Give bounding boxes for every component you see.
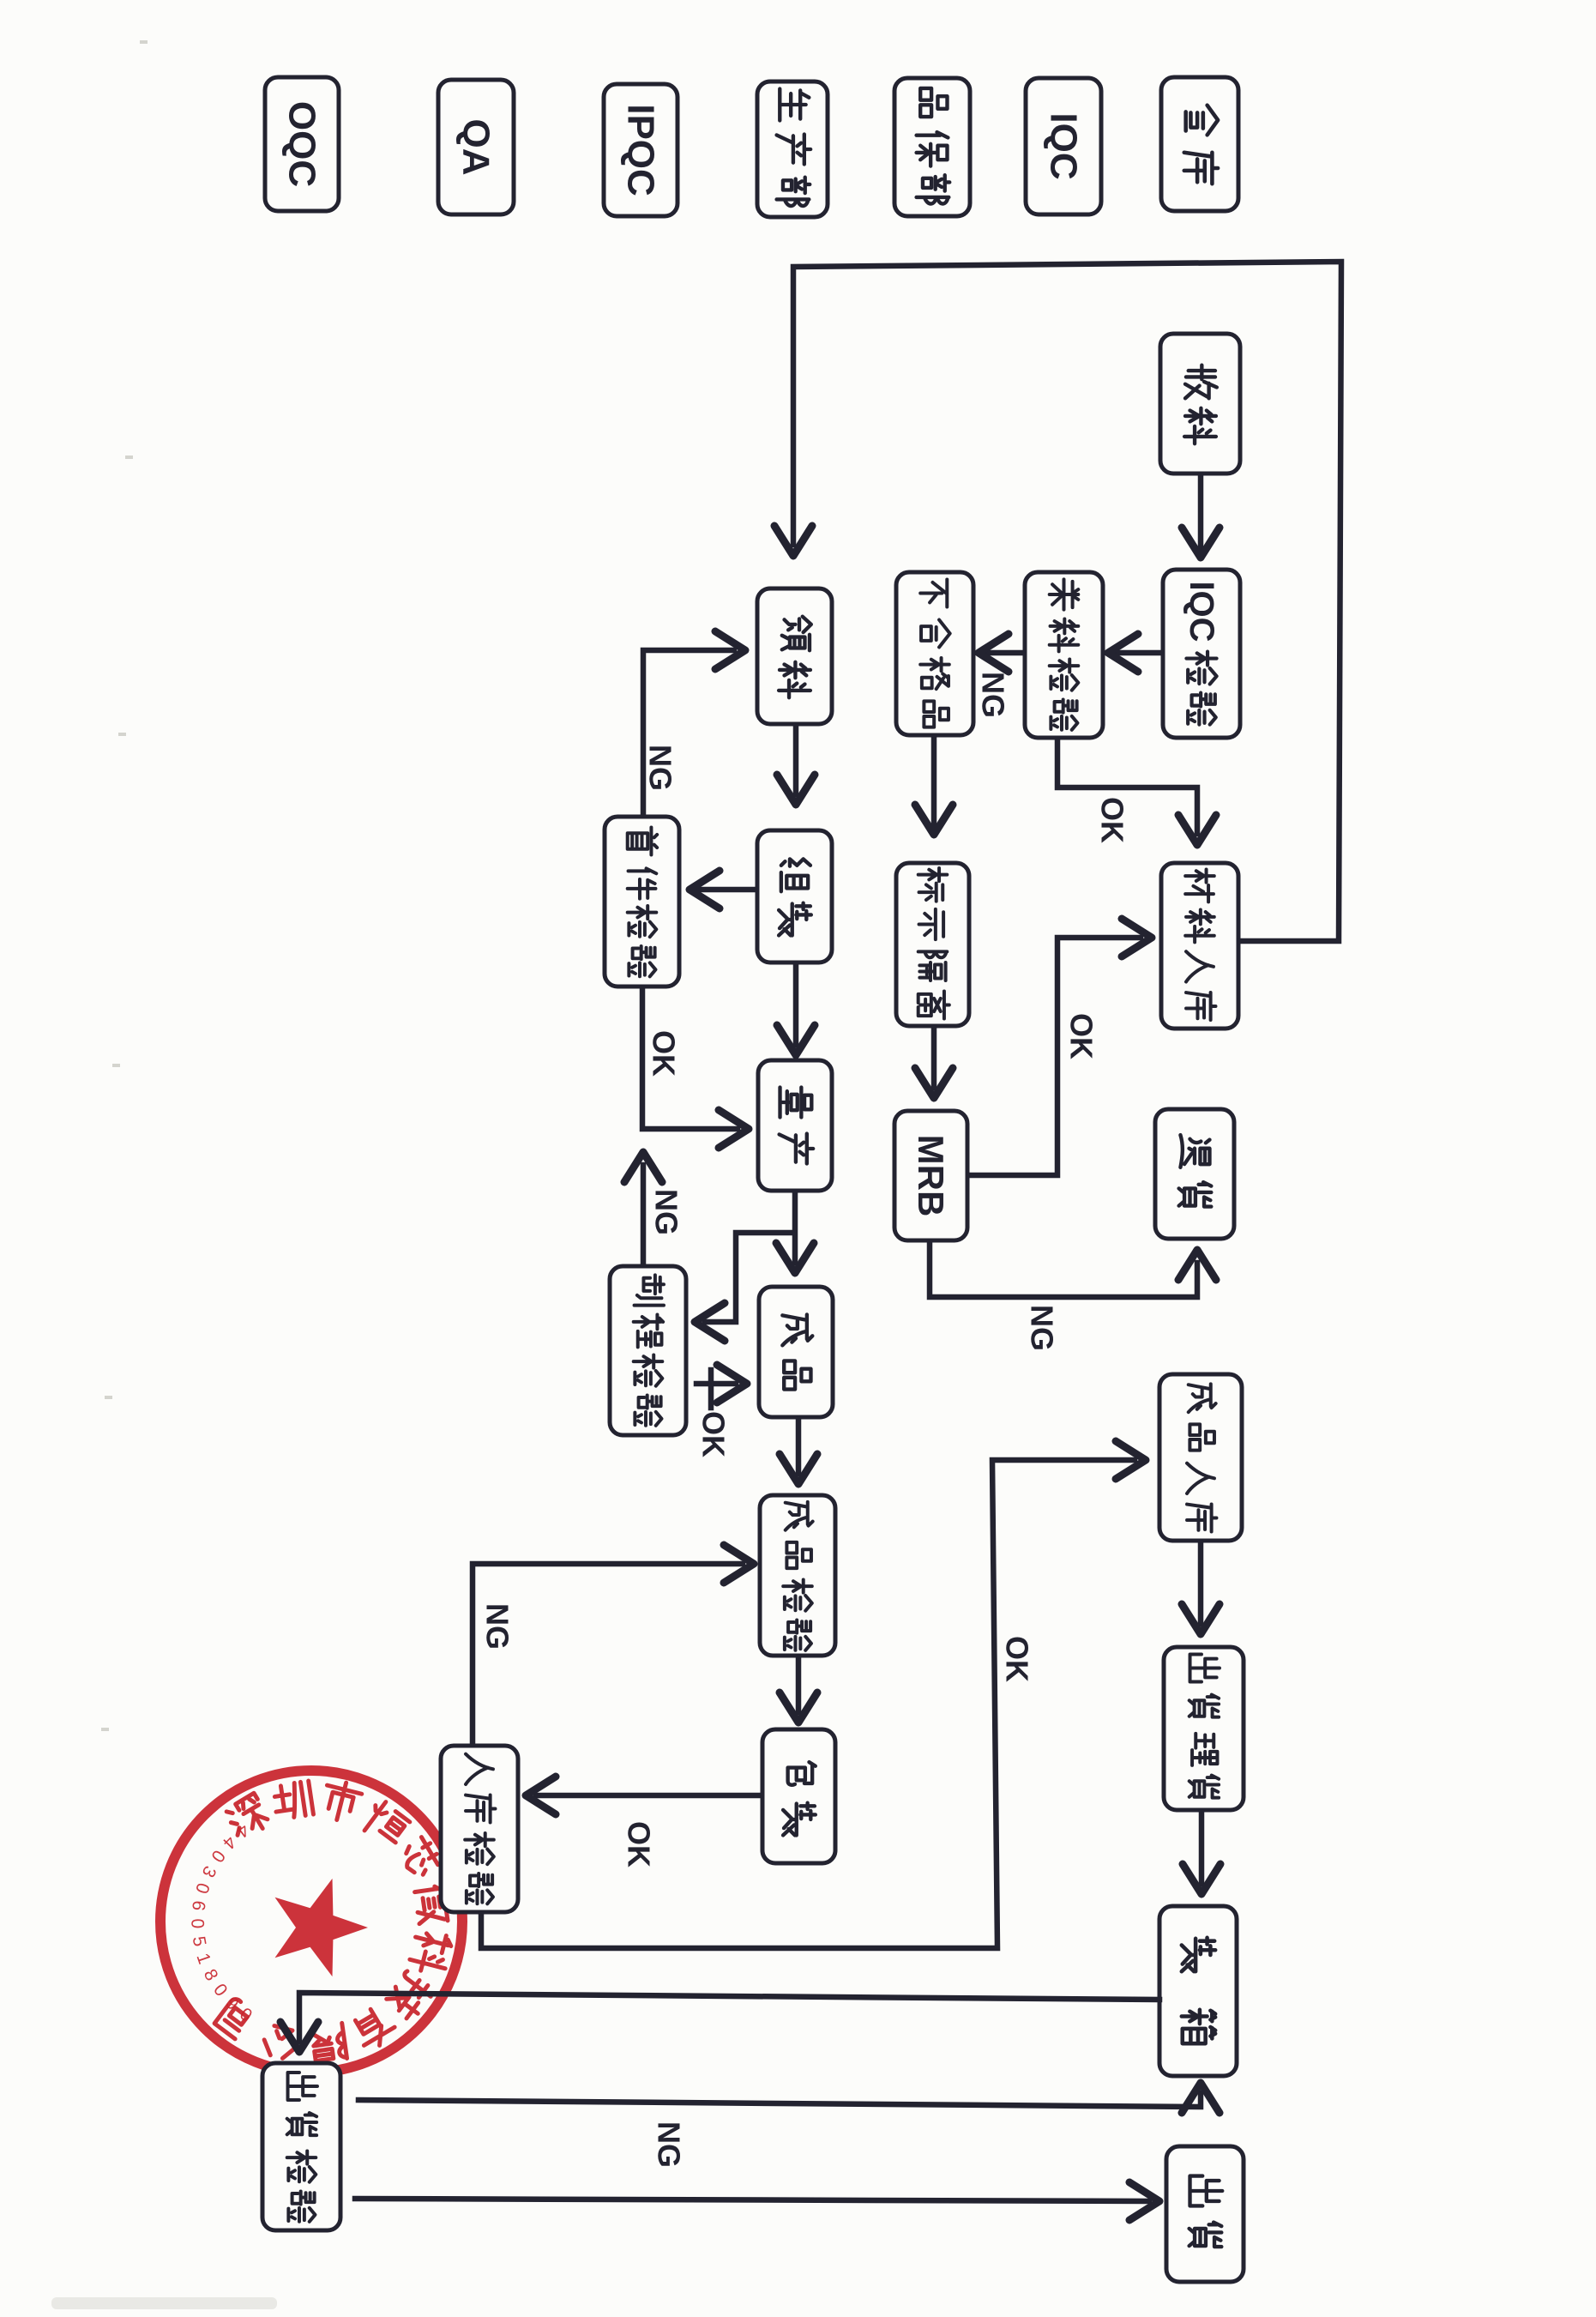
svg-text:0: 0 [191, 1880, 213, 1896]
svg-text:OK: OK [622, 1821, 657, 1867]
svg-text:QA: QA [455, 119, 497, 176]
svg-text:8: 8 [200, 1966, 222, 1984]
svg-text:NG: NG [976, 672, 1011, 718]
svg-text:3: 3 [198, 1862, 220, 1880]
svg-text:OK: OK [1095, 797, 1130, 843]
svg-text:OQC: OQC [281, 101, 323, 187]
svg-text:NG: NG [652, 2121, 687, 2168]
svg-text:OK: OK [647, 1030, 682, 1077]
svg-text:IQC: IQC [1043, 112, 1085, 179]
svg-text:MRB: MRB [911, 1135, 951, 1217]
svg-text:OK: OK [1064, 1013, 1099, 1059]
svg-text:6: 6 [188, 1899, 208, 1912]
svg-text:5: 5 [189, 1934, 210, 1948]
svg-text:OK: OK [696, 1411, 732, 1457]
svg-text:NG: NG [480, 1603, 515, 1650]
svg-text:1: 1 [192, 1951, 214, 1967]
svg-text:0: 0 [187, 1918, 207, 1928]
svg-text:NG: NG [1025, 1305, 1060, 1351]
svg-text:0: 0 [209, 1980, 231, 2000]
svg-text:OK: OK [1000, 1636, 1035, 1682]
svg-text:IQC: IQC [1183, 581, 1220, 642]
svg-text:IPQC: IPQC [620, 104, 662, 196]
svg-text:NG: NG [643, 745, 678, 791]
svg-text:NG: NG [649, 1189, 684, 1235]
svg-text:0: 0 [207, 1846, 229, 1866]
